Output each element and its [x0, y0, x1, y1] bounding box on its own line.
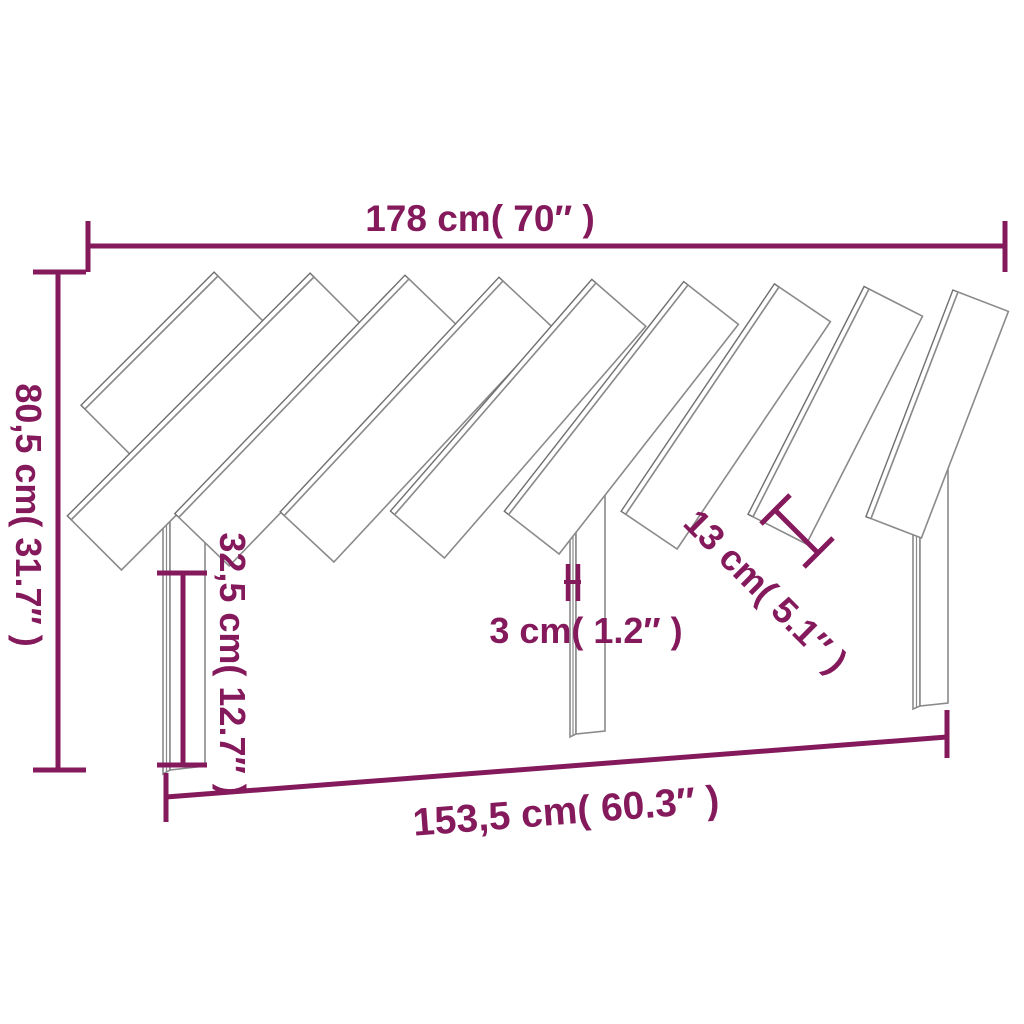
left-height-label: 80,5 cm( 31.7″ ) — [8, 383, 49, 646]
dimension-diagram-page: 178 cm( 70″ ) 80,5 cm( 31.7″ ) 32,5 cm( … — [0, 0, 1024, 1024]
dimension-line — [166, 737, 947, 797]
slat-boards — [67, 272, 1008, 570]
bottom-width-label: 153,5 cm( 60.3″ ) — [411, 778, 720, 844]
slat-gap-label: 13 cm( 5.1″ ) — [676, 501, 856, 681]
dimension-top-width: 178 cm( 70″ ) — [88, 198, 1005, 272]
headboard-dimension-diagram: 178 cm( 70″ ) 80,5 cm( 31.7″ ) 32,5 cm( … — [0, 0, 1024, 1024]
top-width-label: 178 cm( 70″ ) — [365, 198, 595, 239]
leg-thickness-label: 3 cm( 1.2″ ) — [489, 610, 682, 651]
dimension-bottom-width: 153,5 cm( 60.3″ ) — [166, 710, 947, 845]
leg-height-label: 32,5 cm( 12.7″ ) — [212, 532, 253, 795]
